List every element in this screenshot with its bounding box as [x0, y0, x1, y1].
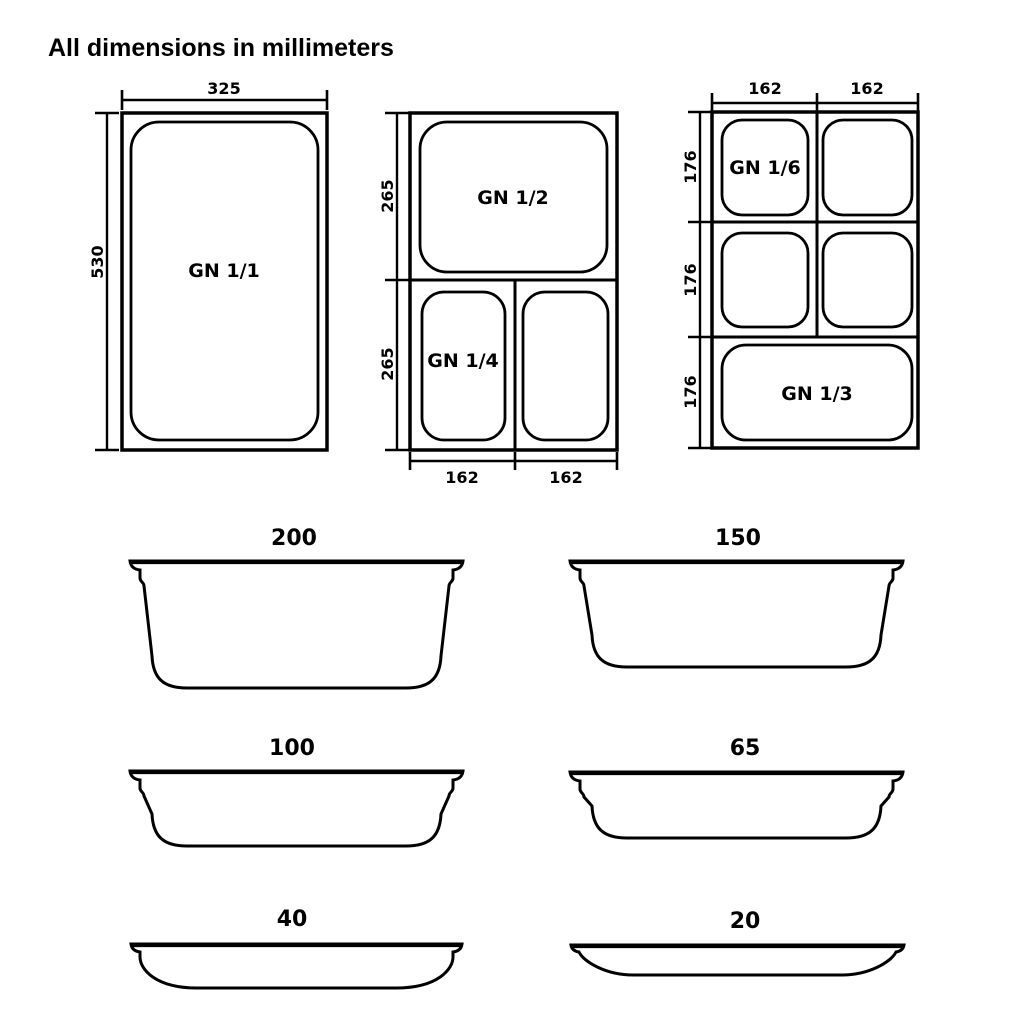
depth-profiles: 200 150 100 65 40 20 [130, 526, 904, 988]
gn16-left-width-value: 162 [748, 79, 781, 98]
profile-40: 40 [131, 907, 462, 988]
profile-100-depth-label: 100 [269, 736, 315, 761]
diagram-canvas: All dimensions in millimeters GN 1/1 325… [0, 0, 1024, 1024]
page-title: All dimensions in millimeters [48, 34, 394, 62]
gn16-pan-outline-mid-right [823, 233, 912, 327]
profile-20-depth-label: 20 [730, 909, 761, 934]
gn12-left-width-value: 162 [445, 468, 478, 487]
gn14-second-pan-outline [523, 292, 608, 440]
profile-40-pan-outline [131, 944, 462, 988]
profile-200-depth-label: 200 [271, 526, 317, 551]
gn12-right-width-value: 162 [549, 468, 582, 487]
profile-65-pan-outline [570, 772, 903, 838]
profile-150-depth-label: 150 [715, 526, 761, 551]
profile-100-pan-outline [130, 771, 463, 846]
gn14-label: GN 1/4 [427, 350, 499, 372]
gn16-row-middle-value: 176 [681, 263, 700, 296]
gn12-lower-height-value: 265 [378, 347, 397, 380]
profile-65: 65 [570, 736, 903, 838]
gn16-pan-outline-top-right [823, 120, 912, 215]
profile-100: 100 [130, 736, 463, 846]
profile-40-depth-label: 40 [277, 907, 308, 932]
gn11-label: GN 1/1 [188, 260, 260, 282]
gn16-row-top-value: 176 [681, 150, 700, 183]
gn11-height-value: 530 [88, 245, 107, 278]
gn16-pan-outline-mid-left [722, 233, 808, 327]
profile-20-pan-outline [571, 945, 904, 975]
profile-200-pan-outline [130, 561, 463, 688]
gn12-upper-height-value: 265 [378, 179, 397, 212]
gn12-label: GN 1/2 [477, 187, 549, 209]
profile-65-depth-label: 65 [730, 736, 761, 761]
gn13-label: GN 1/3 [781, 383, 853, 405]
gn16-right-width-value: 162 [850, 79, 883, 98]
profile-150-pan-outline [570, 561, 903, 667]
gn12-gn14-top-view: GN 1/2 GN 1/4 265 265 162 162 [378, 113, 617, 487]
profile-200: 200 [130, 526, 463, 688]
profile-20: 20 [571, 909, 904, 975]
dimension-diagram: All dimensions in millimeters GN 1/1 325… [0, 0, 1024, 1024]
gn16-gn13-top-view: GN 1/6 GN 1/3 162 162 176 176 176 [681, 79, 918, 448]
gn16-label: GN 1/6 [729, 157, 801, 179]
gn16-row-bottom-value: 176 [681, 375, 700, 408]
gn11-width-value: 325 [207, 79, 240, 98]
profile-150: 150 [570, 526, 903, 667]
gn11-top-view: GN 1/1 325 530 [88, 79, 327, 450]
